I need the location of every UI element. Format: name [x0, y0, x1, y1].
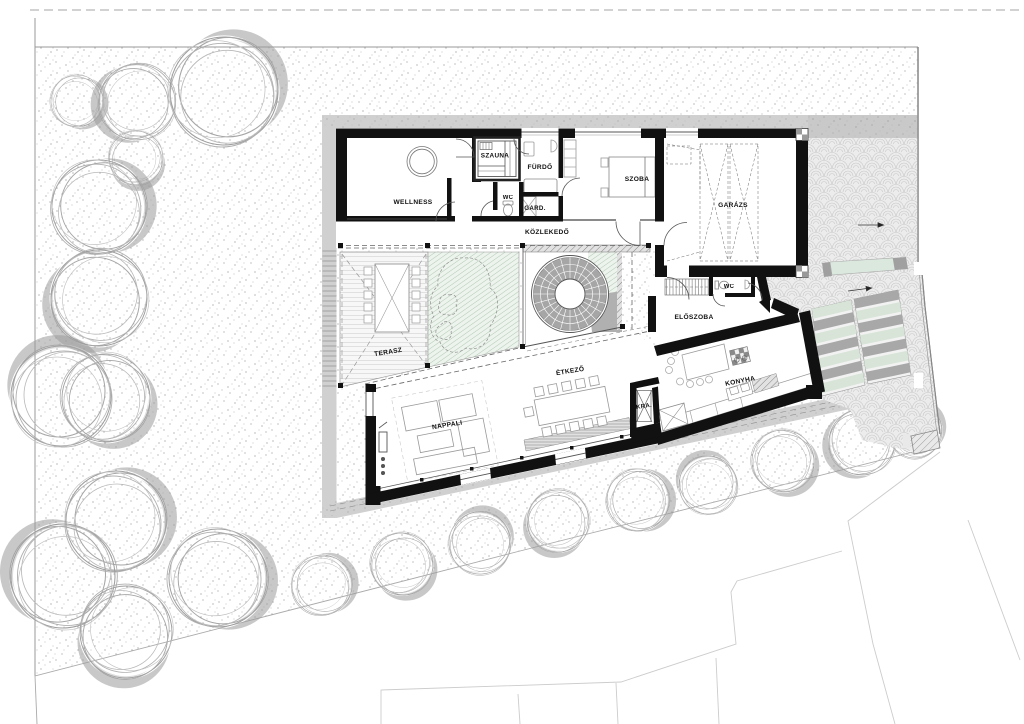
svg-text:GARD.: GARD. — [524, 205, 545, 212]
svg-text:KÖZLEKEDŐ: KÖZLEKEDŐ — [525, 227, 569, 236]
svg-text:WC: WC — [503, 195, 514, 201]
svg-text:GARÁZS: GARÁZS — [718, 200, 748, 209]
svg-text:SZAUNA: SZAUNA — [481, 153, 510, 160]
svg-text:ELŐSZOBA: ELŐSZOBA — [674, 312, 713, 321]
svg-text:SZOBA: SZOBA — [625, 176, 650, 183]
svg-text:WC: WC — [724, 284, 735, 290]
svg-text:WELLNESS: WELLNESS — [393, 199, 432, 206]
svg-text:FÜRDŐ: FÜRDŐ — [528, 162, 553, 171]
